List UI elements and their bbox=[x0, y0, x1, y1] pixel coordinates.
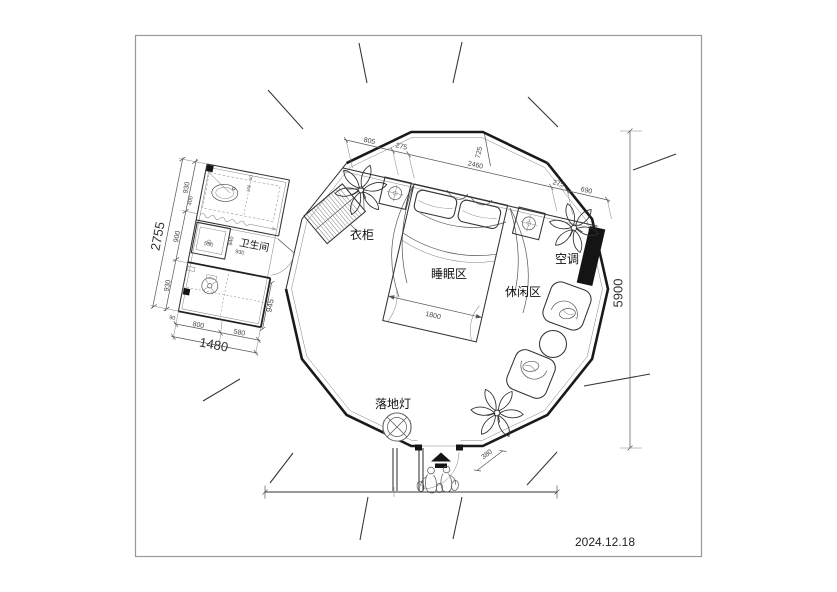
door-post bbox=[415, 445, 422, 451]
floor-lamp-symbol bbox=[383, 413, 412, 441]
dim-725: 725 bbox=[475, 146, 484, 159]
wall-post bbox=[206, 165, 214, 173]
bed-group: 1800 bbox=[383, 184, 508, 342]
floorplan-canvas: 1800 衣柜 空调 bbox=[0, 0, 837, 592]
sleeping-label: 睡眠区 bbox=[431, 267, 467, 281]
dim-400: 400 bbox=[187, 196, 195, 206]
wardrobe-label: 衣柜 bbox=[350, 227, 374, 242]
dim-900: 900 bbox=[173, 230, 182, 243]
dim-90: 90 bbox=[169, 315, 176, 322]
wall-post bbox=[183, 288, 191, 296]
dim-2460: 2460 bbox=[467, 160, 484, 170]
polygon-wall bbox=[286, 132, 608, 446]
date-label: 2024.12.18 bbox=[575, 535, 635, 549]
height-dim: 5900 bbox=[611, 129, 643, 451]
dim-800: 800 bbox=[192, 321, 205, 330]
leisure-label: 休闲区 bbox=[505, 285, 541, 299]
dim-805: 805 bbox=[363, 137, 376, 146]
dim-1480: 1480 bbox=[198, 334, 229, 354]
plant-icon bbox=[328, 157, 393, 224]
ac-label: 空调 bbox=[555, 252, 579, 266]
leisure-chair-1 bbox=[540, 279, 594, 333]
ground-line bbox=[263, 486, 560, 499]
dim-930-top: 930 bbox=[182, 181, 191, 194]
bathroom-group: 卫生间 550 940 930 150 50 bbox=[177, 163, 308, 332]
entry-direction-arrow-icon bbox=[431, 453, 451, 469]
floorplan-page: 1800 衣柜 空调 bbox=[0, 0, 837, 592]
nightstand-left bbox=[379, 177, 411, 209]
dim-930-bottom: 930 bbox=[163, 279, 172, 292]
door-post bbox=[456, 445, 463, 451]
pillow-left bbox=[413, 189, 458, 220]
door-side-dim: 380 bbox=[474, 448, 507, 471]
side-table bbox=[540, 331, 567, 358]
entrance-group: 380 bbox=[393, 445, 507, 494]
dim-580: 580 bbox=[233, 328, 246, 337]
dim-945: 945 bbox=[264, 298, 275, 313]
dim-1800: 1800 bbox=[425, 311, 442, 321]
floor-lamp-label: 落地灯 bbox=[375, 397, 411, 411]
top-dim-chain: 805 275 2460 275 690 725 bbox=[344, 134, 612, 219]
dim-5900: 5900 bbox=[611, 279, 626, 308]
dim-275-left: 275 bbox=[395, 142, 408, 151]
